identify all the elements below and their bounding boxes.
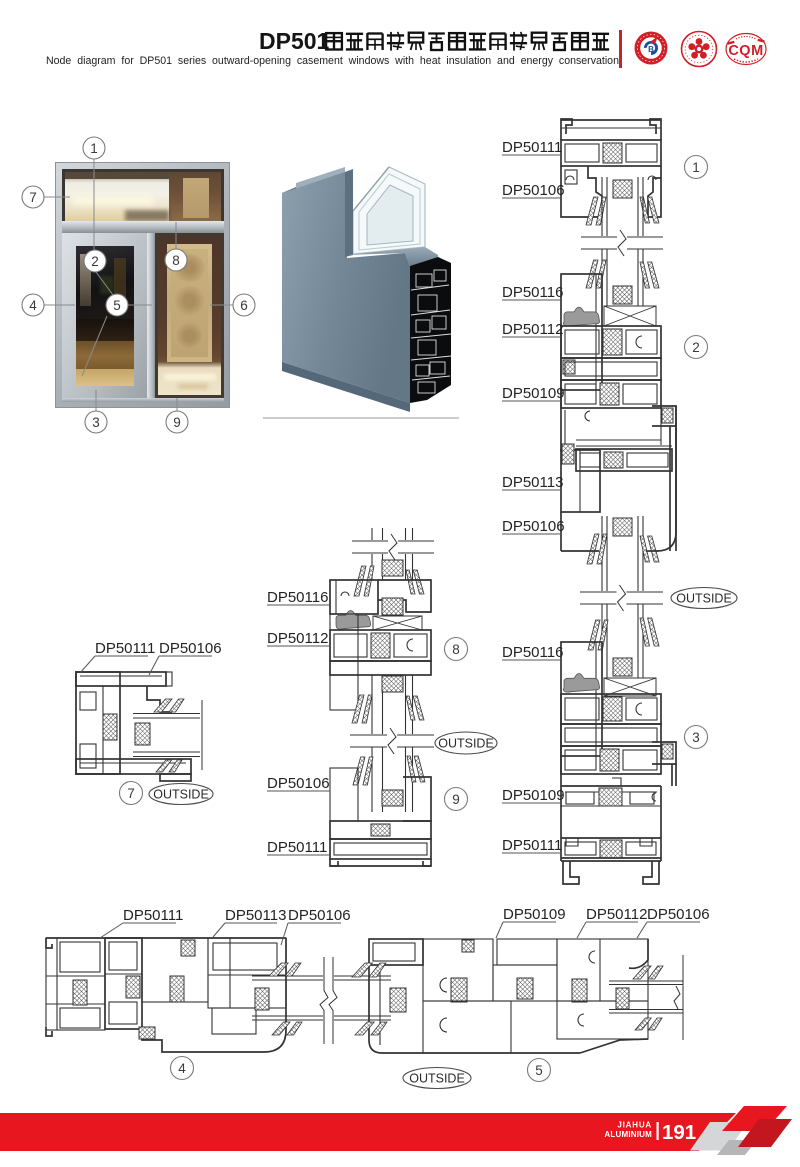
svg-text:5: 5	[113, 298, 121, 313]
svg-text:DP50112: DP50112	[267, 630, 328, 647]
svg-text:JIAHUA: JIAHUA	[617, 1121, 652, 1130]
svg-text:DP50111: DP50111	[502, 139, 562, 156]
svg-text:4: 4	[178, 1061, 186, 1076]
svg-text:8: 8	[172, 253, 180, 268]
svg-text:DP50111: DP50111	[95, 640, 155, 657]
svg-text:ALUMINIUM: ALUMINIUM	[604, 1130, 652, 1139]
svg-text:OUTSIDE: OUTSIDE	[409, 1072, 465, 1086]
svg-text:DP50111: DP50111	[267, 839, 327, 856]
svg-text:DP50109: DP50109	[503, 906, 566, 923]
svg-text:6: 6	[240, 298, 248, 313]
svg-text:3: 3	[692, 730, 700, 745]
svg-text:5: 5	[535, 1063, 543, 1078]
svg-text:DP50111: DP50111	[123, 907, 183, 924]
svg-text:DP50106: DP50106	[267, 775, 330, 792]
svg-text:DP50113: DP50113	[225, 907, 286, 924]
svg-text:OUTSIDE: OUTSIDE	[438, 737, 494, 751]
svg-text:DP50106: DP50106	[502, 182, 565, 199]
svg-text:191: 191	[662, 1121, 696, 1144]
svg-text:1: 1	[692, 160, 700, 175]
svg-text:OUTSIDE: OUTSIDE	[153, 788, 209, 802]
svg-text:DP50109: DP50109	[502, 385, 565, 402]
svg-text:4: 4	[29, 298, 37, 313]
svg-text:DP50106: DP50106	[647, 906, 710, 923]
svg-text:DP50116: DP50116	[502, 644, 563, 661]
svg-text:DP50112: DP50112	[586, 906, 647, 923]
svg-text:2: 2	[692, 340, 700, 355]
svg-text:DP50106: DP50106	[502, 518, 565, 535]
svg-text:3: 3	[92, 415, 100, 430]
svg-text:7: 7	[127, 786, 135, 801]
svg-text:2: 2	[91, 254, 99, 269]
svg-text:DP50106: DP50106	[159, 640, 222, 657]
svg-text:DP50106: DP50106	[288, 907, 351, 924]
svg-text:DP50111: DP50111	[502, 837, 562, 854]
svg-text:DP50116: DP50116	[267, 589, 328, 606]
svg-text:9: 9	[452, 792, 460, 807]
svg-text:DP50113: DP50113	[502, 474, 563, 491]
svg-text:1: 1	[90, 141, 98, 156]
svg-text:DP50112: DP50112	[502, 321, 563, 338]
svg-text:DP50116: DP50116	[502, 284, 563, 301]
svg-text:9: 9	[173, 415, 181, 430]
svg-text:DP50109: DP50109	[502, 787, 565, 804]
svg-text:7: 7	[29, 190, 37, 205]
svg-text:8: 8	[452, 642, 460, 657]
svg-text:OUTSIDE: OUTSIDE	[676, 592, 732, 606]
